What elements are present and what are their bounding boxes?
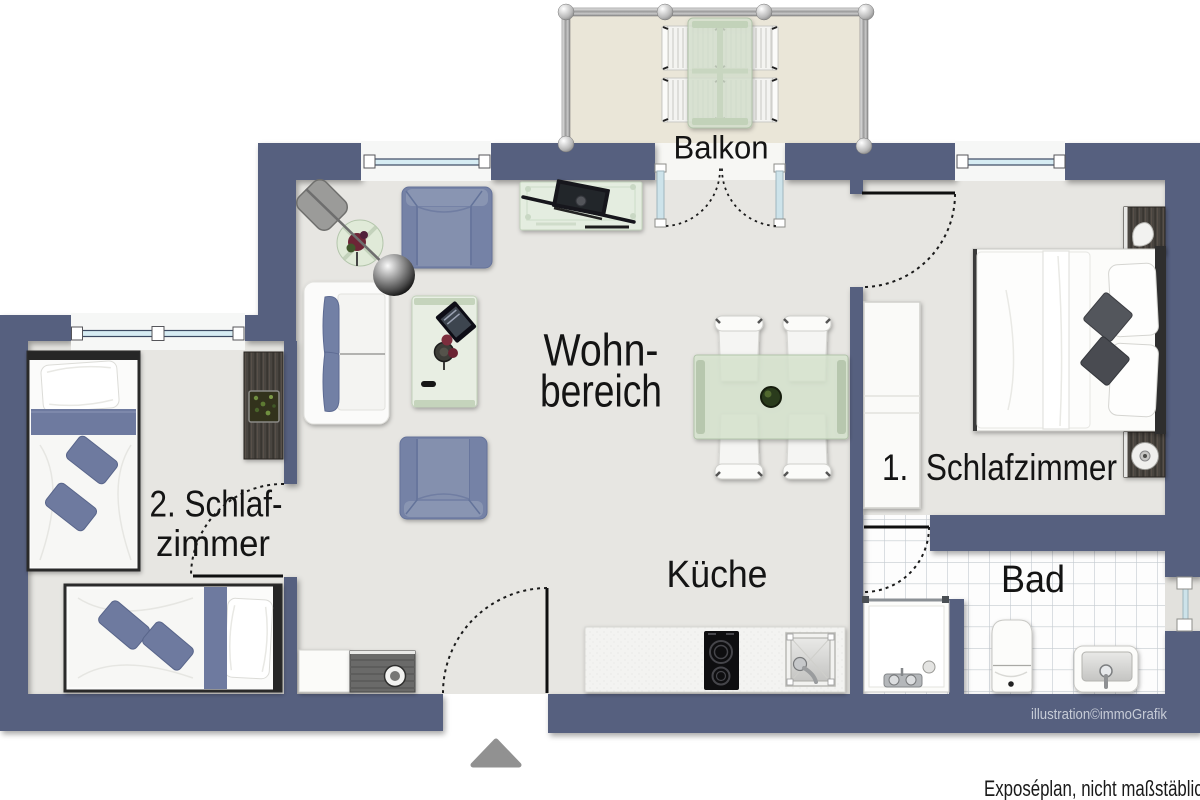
svg-text:zimmer: zimmer <box>156 523 270 564</box>
svg-text:illustration©immoGrafik: illustration©immoGrafik <box>1031 706 1167 723</box>
svg-text:Balkon: Balkon <box>674 130 769 166</box>
svg-text:2. Schlaf-: 2. Schlaf- <box>150 484 283 525</box>
svg-text:Exposéplan, nicht maßstäblich: Exposéplan, nicht maßstäblich <box>984 776 1200 800</box>
svg-text:bereich: bereich <box>540 366 662 417</box>
svg-text:1. Schlafzimmer: 1. Schlafzimmer <box>882 447 1117 488</box>
svg-text:Küche: Küche <box>667 554 768 596</box>
svg-text:Bad: Bad <box>1001 559 1065 601</box>
